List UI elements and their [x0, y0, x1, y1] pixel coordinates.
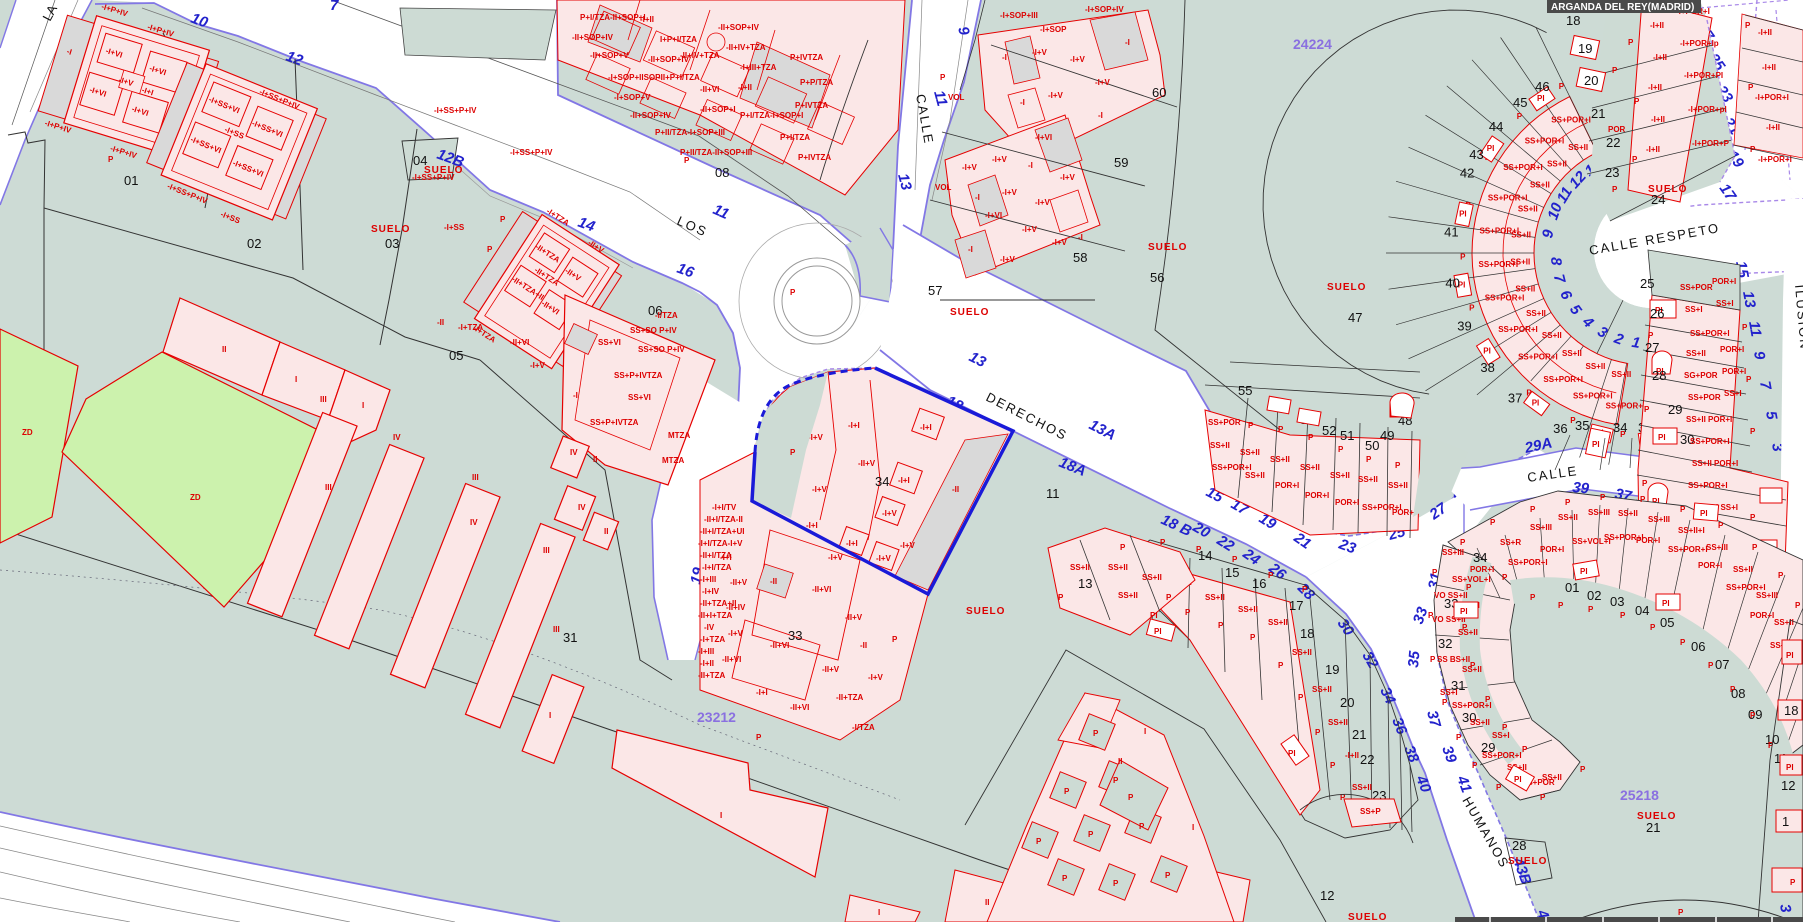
svg-text:P: P [1580, 765, 1586, 774]
svg-text:-II+V: -II+V [822, 665, 840, 674]
svg-text:SS+II: SS+II [1526, 309, 1546, 318]
svg-text:III: III [553, 625, 560, 634]
svg-text:P: P [1466, 583, 1472, 592]
svg-text:16: 16 [1252, 576, 1266, 591]
svg-text:SS+II: SS+II [1518, 205, 1538, 214]
svg-text:P: P [1218, 621, 1224, 630]
svg-text:P: P [1248, 421, 1254, 430]
svg-text:IV: IV [470, 518, 478, 527]
svg-text:MTZA: MTZA [668, 431, 690, 440]
svg-text:II: II [1118, 757, 1122, 766]
svg-text:P: P [1502, 573, 1508, 582]
svg-text:P: P [1470, 661, 1476, 670]
svg-text:-I+I: -I+I [846, 539, 858, 548]
svg-text:02: 02 [247, 236, 261, 251]
svg-text:P: P [1278, 661, 1284, 670]
svg-text:SS+II: SS+II [1388, 481, 1408, 490]
svg-text:-I+V: -I+V [962, 163, 978, 172]
svg-text:P: P [1462, 623, 1468, 632]
svg-text:-I+SOP: -I+SOP [1040, 25, 1067, 34]
svg-text:-I+SOP+IISOP: -I+SOP+IISOP [608, 73, 661, 82]
svg-text:SS+II: SS+II [1300, 463, 1320, 472]
svg-text:SS+POR: SS+POR [1208, 418, 1241, 427]
svg-text:P: P [1298, 693, 1304, 702]
svg-text:POR+I: POR+I [1392, 508, 1416, 517]
svg-text:P: P [1708, 661, 1714, 670]
svg-text:38: 38 [1480, 360, 1494, 375]
svg-text:POR+I: POR+I [1470, 565, 1494, 574]
svg-text:-II+TZA: -II+TZA [836, 693, 864, 702]
svg-text:P: P [1250, 633, 1256, 642]
svg-text:SS+II: SS+II [1118, 591, 1138, 600]
svg-text:-I+V: -I+V [876, 554, 892, 563]
svg-text:05: 05 [449, 348, 463, 363]
svg-text:P: P [1680, 638, 1686, 647]
svg-text:P: P [1490, 518, 1496, 527]
svg-text:SS+II: SS+II [1515, 284, 1535, 293]
svg-text:SS+II: SS+II [1618, 509, 1638, 518]
svg-text:-I: -I [1078, 233, 1083, 242]
svg-text:-II+SOP+IV: -II+SOP+IV [718, 23, 760, 32]
svg-text:SS+VI: SS+VI [598, 338, 621, 347]
svg-text:-II+VI: -II+VI [770, 641, 789, 650]
svg-text:SS+P: SS+P [1360, 807, 1381, 816]
svg-text:SS+I: SS+I [1492, 731, 1510, 740]
svg-text:P: P [1730, 685, 1736, 694]
svg-text:I: I [549, 711, 551, 720]
svg-text:-I+V: -I+V [868, 673, 884, 682]
svg-text:-I+II: -I+II [640, 15, 654, 24]
svg-text:PI: PI [1786, 651, 1794, 660]
svg-text:-I+V: -I+V [530, 361, 546, 370]
svg-text:P: P [1768, 741, 1774, 750]
svg-text:P: P [684, 156, 690, 165]
svg-text:-II+IV+TZA: -II+IV+TZA [680, 51, 720, 60]
svg-text:ZD: ZD [190, 493, 201, 502]
svg-text:PI: PI [1700, 509, 1708, 518]
svg-text:21: 21 [1646, 820, 1660, 835]
svg-text:P: P [1165, 871, 1171, 880]
svg-text:-I+V: -I+V [1032, 48, 1048, 57]
svg-text:-I+V: -I+V [1000, 255, 1016, 264]
svg-text:SS+POR+I: SS+POR+I [1485, 294, 1525, 303]
svg-text:SS+II: SS+II [1238, 605, 1258, 614]
svg-text:SS+VOL+I: SS+VOL+I [1452, 575, 1491, 584]
svg-text:P: P [1062, 874, 1068, 883]
svg-text:-II: -II [860, 641, 867, 650]
svg-text:SS+I: SS+I [1724, 389, 1742, 398]
svg-text:SS+II: SS+II [1542, 773, 1562, 782]
svg-text:P: P [1232, 555, 1238, 564]
svg-text:-I+I: -I+I [848, 421, 860, 430]
svg-text:P: P [892, 635, 898, 644]
svg-text:40: 40 [1445, 276, 1459, 291]
svg-text:PI: PI [1483, 347, 1491, 356]
svg-text:41: 41 [1444, 225, 1458, 240]
svg-text:-II: -II [952, 485, 959, 494]
svg-text:SUELO: SUELO [1327, 282, 1366, 293]
svg-text:45: 45 [1513, 95, 1527, 110]
svg-text:46: 46 [1535, 79, 1549, 94]
svg-text:19: 19 [1578, 41, 1592, 56]
svg-text:SS+POR+I: SS+POR+I [1479, 260, 1519, 269]
svg-text:P: P [1517, 112, 1523, 121]
svg-text:III: III [325, 483, 332, 492]
svg-text:SS+POR+I: SS+POR+I [1525, 137, 1565, 146]
svg-text:28: 28 [1652, 368, 1666, 383]
svg-text:-I+II: -I+II [1653, 53, 1667, 62]
svg-text:P+IVTZA: P+IVTZA [795, 101, 828, 110]
svg-text:-I: -I [968, 245, 973, 254]
svg-text:-I+POR+I: -I+POR+I [1755, 93, 1789, 102]
svg-text:PI: PI [1459, 209, 1467, 218]
svg-text:-I+III: -I+III [700, 575, 716, 584]
svg-text:SS BS+II: SS BS+II [1437, 655, 1470, 664]
svg-text:P: P [1745, 21, 1751, 30]
svg-text:SUELO: SUELO [950, 307, 989, 318]
svg-text:POR+I: POR+I [1722, 367, 1746, 376]
svg-text:POR: POR [1608, 125, 1626, 134]
svg-text:21: 21 [1591, 106, 1605, 121]
svg-text:P: P [1642, 479, 1648, 488]
svg-text:P: P [1185, 608, 1191, 617]
svg-text:-I+II: -I+II [1646, 145, 1660, 154]
svg-text:P: P [1036, 837, 1042, 846]
svg-text:P+I/TZA-I+SOP+I: P+I/TZA-I+SOP+I [740, 111, 803, 120]
svg-text:-II+IV+TZA: -II+IV+TZA [726, 43, 766, 52]
svg-text:P: P [1522, 745, 1528, 754]
svg-text:P: P [1472, 761, 1478, 770]
svg-text:P+I/TZA-II+SOP+I: P+I/TZA-II+SOP+I [580, 13, 646, 22]
svg-text:P: P [1120, 543, 1126, 552]
svg-text:SS+III: SS+III [1756, 591, 1778, 600]
svg-text:P: P [1678, 908, 1684, 917]
svg-text:-I+I: -I+I [720, 553, 732, 562]
svg-text:P: P [1315, 728, 1321, 737]
svg-text:-I+I/TZA-I+V: -I+I/TZA-I+V [698, 539, 743, 548]
svg-text:P: P [1166, 593, 1172, 602]
svg-text:I: I [1192, 823, 1194, 832]
svg-text:P: P [1058, 593, 1064, 602]
svg-text:SS+POR+I: SS+POR+I [1690, 437, 1730, 446]
svg-text:24224: 24224 [1293, 36, 1332, 52]
svg-text:-I+SS+P+IV: -I+SS+P+IV [510, 148, 553, 157]
svg-text:P: P [1750, 427, 1756, 436]
svg-text:P: P [1750, 513, 1756, 522]
svg-text:IV: IV [393, 433, 401, 442]
svg-text:I: I [295, 375, 297, 384]
svg-text:39: 39 [1457, 318, 1471, 333]
svg-text:34: 34 [1613, 420, 1627, 435]
svg-text:SS+POR+I: SS+POR+I [1726, 583, 1766, 592]
svg-text:P+II/TZA-II+SOP+III: P+II/TZA-II+SOP+III [680, 148, 752, 157]
svg-text:22: 22 [1360, 752, 1374, 767]
svg-text:27: 27 [1645, 340, 1659, 355]
svg-text:I: I [1144, 727, 1146, 736]
svg-text:02: 02 [1587, 588, 1601, 603]
svg-text:-I: -I [1125, 38, 1130, 47]
svg-text:-I+I/TZA: -I+I/TZA [702, 563, 732, 572]
svg-text:SS+POR+I: SS+POR+I [1551, 116, 1591, 125]
svg-text:-I+SOP+IV: -I+SOP+IV [1085, 5, 1124, 14]
svg-text:SS+II: SS+II [1568, 143, 1588, 152]
svg-text:-I: -I [1098, 111, 1103, 120]
svg-text:18: 18 [1784, 703, 1798, 718]
svg-text:SS+POR+I: SS+POR+I [1606, 401, 1646, 410]
svg-text:SS+P+IVTZA: SS+P+IVTZA [614, 371, 663, 380]
svg-text:P: P [1632, 155, 1638, 164]
svg-text:P: P [1600, 493, 1606, 502]
svg-text:P: P [1612, 66, 1618, 75]
svg-text:II: II [604, 527, 608, 536]
svg-text:SS+II: SS+II [1292, 648, 1312, 657]
svg-text:SS+POR+I: SS+POR+I [1668, 545, 1708, 554]
svg-text:PI: PI [1460, 607, 1468, 616]
svg-text:-IV: -IV [704, 623, 715, 632]
svg-text:SS+III: SS+III [1648, 515, 1670, 524]
svg-text:P: P [1742, 323, 1748, 332]
svg-text:P: P [1430, 655, 1436, 664]
svg-text:P+P/TZA: P+P/TZA [800, 78, 833, 87]
svg-text:25: 25 [1640, 276, 1654, 291]
svg-text:II: II [222, 345, 226, 354]
svg-text:26: 26 [1650, 306, 1664, 321]
svg-text:SS+POR+I: SS+POR+I [1688, 481, 1728, 490]
svg-text:SS+POR+I: SS+POR+I [1480, 226, 1520, 235]
svg-text:SS+POR: SS+POR [1688, 393, 1721, 402]
svg-text:-I+SOP+III: -I+SOP+III [1000, 11, 1038, 20]
svg-text:SS+II: SS+II [1470, 718, 1490, 727]
svg-text:SS+II: SS+II [1330, 471, 1350, 480]
svg-text:-II+VI: -II+VI [790, 703, 809, 712]
svg-text:SS+II+I: SS+II+I [1678, 526, 1705, 535]
svg-text:P: P [1530, 593, 1536, 602]
svg-text:SS+POR+I: SS+POR+I [1498, 325, 1538, 334]
svg-text:SS+II: SS+II [1352, 783, 1372, 792]
svg-text:P: P [1460, 253, 1466, 262]
svg-text:SS+II: SS+II [1328, 718, 1348, 727]
svg-text:P: P [1456, 733, 1462, 742]
svg-text:POR+I: POR+I [1335, 498, 1359, 507]
svg-text:21: 21 [1352, 727, 1366, 742]
svg-text:PI: PI [1580, 567, 1588, 576]
svg-text:SUELO: SUELO [1348, 912, 1387, 922]
svg-text:P: P [108, 155, 114, 164]
svg-text:7: 7 [330, 0, 339, 14]
svg-text:P: P [1790, 878, 1796, 887]
svg-text:55: 55 [1238, 383, 1252, 398]
svg-text:11: 11 [1046, 486, 1060, 501]
svg-text:34: 34 [875, 474, 889, 489]
svg-text:18: 18 [1566, 13, 1580, 28]
svg-text:-II+SOP+V: -II+SOP+V [590, 51, 629, 60]
svg-text:-I+II: -I+II [1651, 115, 1665, 124]
svg-text:SS+SO P+IV: SS+SO P+IV [638, 345, 685, 354]
svg-text:III: III [320, 395, 327, 404]
svg-text:-I+V: -I+V [828, 553, 844, 562]
svg-text:-I+V: -I+V [882, 509, 898, 518]
svg-text:12: 12 [1320, 888, 1334, 903]
svg-text:PI: PI [1786, 763, 1794, 772]
svg-text:SS+II: SS+II [1070, 563, 1090, 572]
svg-text:8: 8 [1547, 257, 1564, 267]
svg-text:-II+TZA: -II+TZA [698, 671, 726, 680]
svg-text:P: P [790, 288, 796, 297]
svg-text:P: P [1778, 571, 1784, 580]
svg-text:POR+I: POR+I [1305, 491, 1329, 500]
svg-text:-I+V: -I+V [1052, 238, 1068, 247]
svg-text:07: 07 [1715, 657, 1729, 672]
svg-text:I: I [720, 811, 722, 820]
svg-text:POR+I: POR+I [1750, 611, 1774, 620]
svg-text:-I+II: -I+II [1345, 751, 1359, 760]
svg-text:P: P [1612, 185, 1618, 194]
svg-text:-II: -II [770, 577, 777, 586]
svg-text:VOL: VOL [948, 93, 965, 102]
svg-text:VOL: VOL [935, 183, 952, 192]
svg-text:-II+VI: -II+VI [700, 85, 719, 94]
svg-text:P: P [1565, 498, 1571, 507]
svg-text:SS+II: SS+II [1142, 573, 1162, 582]
svg-text:P: P [1302, 585, 1308, 594]
svg-text:P+II/TZA-I+SOP+III: P+II/TZA-I+SOP+III [655, 128, 725, 137]
svg-text:P: P [1680, 505, 1686, 514]
svg-text:P: P [1530, 505, 1536, 514]
svg-text:18: 18 [1300, 626, 1314, 641]
svg-text:-I+I: -I+I [756, 688, 768, 697]
svg-text:-I+POR+Ip: -I+POR+Ip [1680, 39, 1719, 48]
svg-text:P+I/TZA: P+I/TZA [780, 133, 810, 142]
svg-text:SS+VI: SS+VI [628, 393, 651, 402]
svg-text:-I+I: -I+I [920, 423, 932, 432]
svg-text:-I+V: -I+V [1002, 188, 1018, 197]
svg-text:SS+II: SS+II [1586, 362, 1606, 371]
svg-text:SS+II: SS+II [1240, 448, 1260, 457]
svg-text:SS+R: SS+R [1500, 538, 1521, 547]
svg-text:P: P [1113, 776, 1119, 785]
svg-text:-II: -II [437, 318, 444, 327]
svg-text:P: P [1748, 83, 1754, 92]
svg-text:P: P [1113, 879, 1119, 888]
svg-text:P: P [1634, 97, 1640, 106]
svg-text:P: P [1442, 698, 1448, 707]
svg-text:P: P [790, 448, 796, 457]
svg-text:29: 29 [1668, 402, 1682, 417]
svg-text:-I+POR+P: -I+POR+P [1692, 139, 1730, 148]
svg-text:51: 51 [1340, 428, 1354, 443]
svg-text:P: P [1588, 605, 1594, 614]
svg-text:SS+II: SS+II [1108, 563, 1128, 572]
svg-text:P: P [1559, 82, 1565, 91]
svg-text:P: P [1428, 611, 1434, 620]
svg-text:SS+II: SS+II [1562, 349, 1582, 358]
svg-text:P: P [1469, 304, 1475, 313]
svg-text:P: P [1196, 545, 1202, 554]
svg-text:01: 01 [1565, 580, 1579, 595]
svg-text:SUELO: SUELO [966, 606, 1005, 617]
svg-text:-II+V: -II+V [730, 578, 748, 587]
svg-text:17: 17 [1289, 598, 1303, 613]
svg-text:11: 11 [1745, 320, 1764, 338]
svg-text:-I+SS+P+IV: -I+SS+P+IV [434, 106, 477, 115]
svg-text:42: 42 [1460, 165, 1474, 180]
svg-text:P: P [1460, 538, 1466, 547]
svg-text:P: P [1338, 445, 1344, 454]
svg-text:PI: PI [1537, 94, 1545, 103]
svg-text:-I+III+TZA: -I+III+TZA [740, 63, 777, 72]
svg-text:P: P [500, 215, 506, 224]
svg-text:P: P [940, 73, 946, 82]
svg-text:ZD: ZD [22, 428, 33, 437]
svg-text:P: P [1330, 761, 1336, 770]
svg-text:-I+V: -I+V [900, 541, 916, 550]
svg-text:SS+POR+I: SS+POR+I [1482, 751, 1522, 760]
svg-text:37: 37 [1508, 391, 1522, 406]
svg-text:P: P [1064, 787, 1070, 796]
svg-text:-I: -I [975, 193, 980, 202]
svg-text:23212: 23212 [697, 709, 736, 725]
svg-text:50: 50 [1365, 438, 1379, 453]
svg-text:-I+V: -I+V [1095, 78, 1111, 87]
svg-text:II: II [985, 898, 989, 907]
svg-text:SS+POR: SS+POR [1680, 283, 1713, 292]
svg-text:49: 49 [1380, 428, 1394, 443]
svg-text:-I+II: -I+II [1758, 28, 1772, 37]
svg-text:P: P [1093, 729, 1099, 738]
svg-text:19: 19 [1325, 662, 1339, 677]
svg-text:-II+P+I/TZA: -II+P+I/TZA [658, 73, 700, 82]
svg-text:POR+I: POR+I [1712, 277, 1736, 286]
svg-text:SS+P+IVTZA: SS+P+IVTZA [590, 418, 639, 427]
svg-text:13: 13 [1078, 576, 1092, 591]
svg-text:P: P [1540, 793, 1546, 802]
svg-text:-I+I/TV: -I+I/TV [712, 503, 737, 512]
svg-text:PI: PI [1288, 749, 1296, 758]
svg-text:SS+II: SS+II [1530, 181, 1550, 190]
svg-text:POR+I: POR+I [1636, 536, 1660, 545]
svg-text:SS+II: SS+II [1542, 331, 1562, 340]
svg-text:-I+II: -I+II [1762, 63, 1776, 72]
svg-text:-I+II: -I+II [1648, 83, 1662, 92]
svg-text:SS+II: SS+II [1733, 565, 1753, 574]
svg-text:SS+II: SS+II [1210, 441, 1230, 450]
svg-text:-I+TZA: -I+TZA [458, 323, 483, 332]
svg-text:SS+I: SS+I [1685, 305, 1703, 314]
svg-text:-I+IV: -I+IV [702, 587, 720, 596]
svg-text:SS+II: SS+II [1686, 349, 1706, 358]
svg-text:-I+III: -I+III [698, 647, 714, 656]
svg-text:57: 57 [928, 283, 942, 298]
svg-text:-II+SOP+IV: -II+SOP+IV [572, 33, 614, 42]
svg-text:04: 04 [1635, 603, 1649, 618]
svg-text:SS+SO P+IV: SS+SO P+IV [630, 326, 677, 335]
svg-text:SS+POR+I: SS+POR+I [1573, 392, 1613, 401]
svg-text:25218: 25218 [1620, 787, 1659, 803]
svg-text:SS+II: SS+II [1312, 685, 1332, 694]
svg-text:SS+II: SS+II [1774, 618, 1794, 627]
svg-text:PI: PI [1532, 399, 1540, 408]
svg-text:P: P [1502, 723, 1508, 732]
svg-text:SS+POR+I: SS+POR+I [1508, 558, 1548, 567]
svg-text:-II+V: -II+V [845, 613, 863, 622]
svg-text:SS+II: SS+II [1358, 475, 1378, 484]
svg-text:I: I [878, 908, 880, 917]
svg-text:P: P [1795, 601, 1801, 610]
svg-text:-I+II: -I+II [1650, 21, 1664, 30]
svg-text:SS+II: SS+II [1547, 160, 1567, 169]
svg-text:P+IVTZA: P+IVTZA [798, 153, 831, 162]
svg-text:P: P [1139, 822, 1145, 831]
